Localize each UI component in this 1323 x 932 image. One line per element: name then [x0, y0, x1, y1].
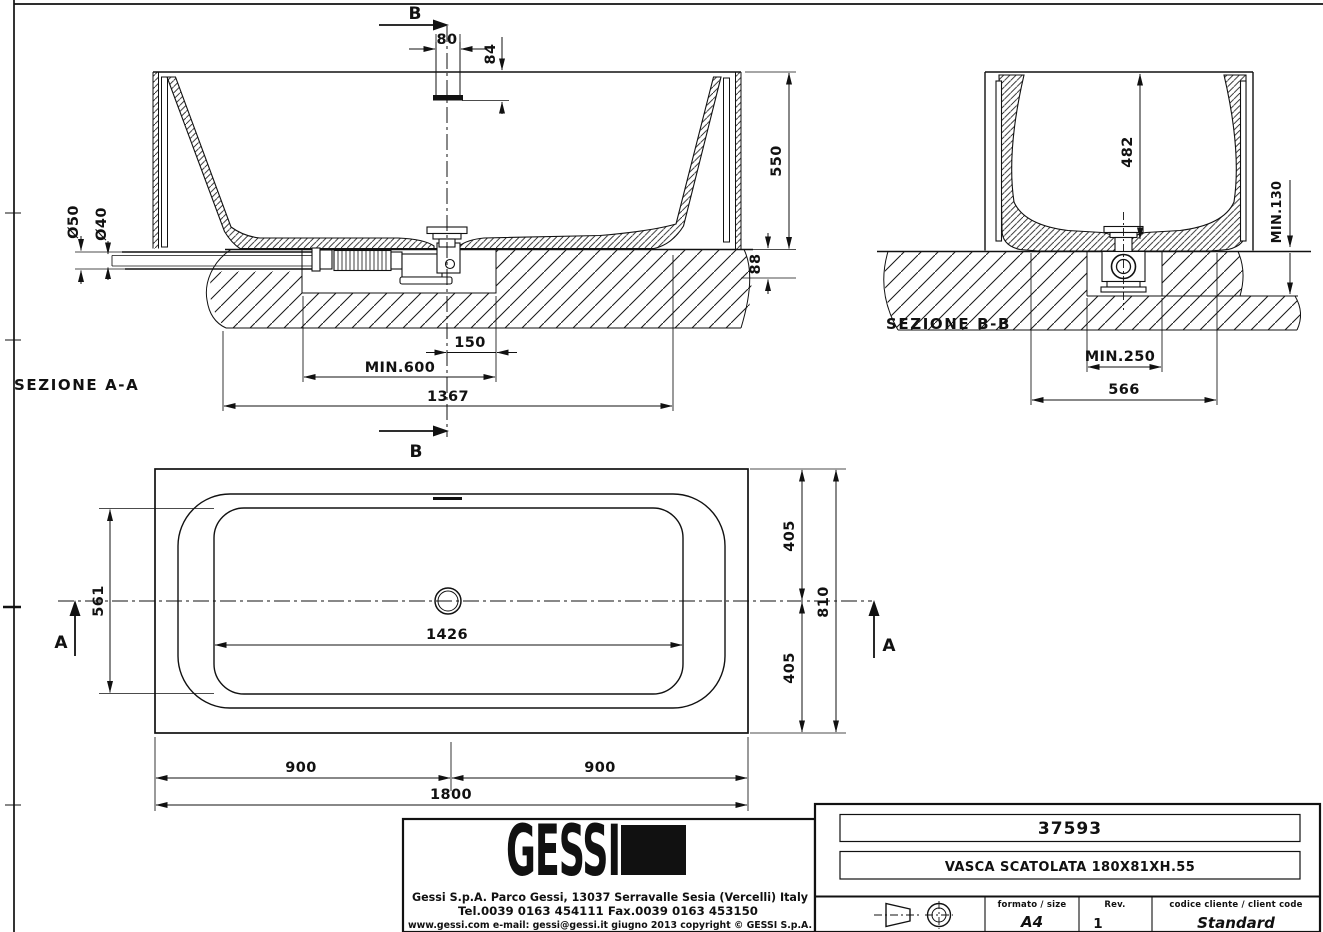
tub-shell-section: [167, 77, 721, 249]
plan-view: A A 561 1426 405 405 810: [54, 469, 896, 811]
rev-value: 1: [1093, 916, 1102, 932]
dim-84-label: 84: [483, 44, 499, 65]
dim-depth: 482: [1120, 74, 1140, 239]
client-code-value: Standard: [1197, 914, 1275, 932]
cut-letter-b-top: B: [409, 4, 422, 24]
right-apron-panel: [1241, 81, 1247, 241]
rev-label: Rev.: [1104, 900, 1125, 910]
dim-basin-length: 1426: [215, 627, 682, 645]
client-code-label: codice cliente / client code: [1169, 900, 1302, 910]
cut-arrow-b-top: B: [379, 4, 449, 31]
section-bb-view: 482 MIN.130 MIN.250 566 SEZIONE B-B: [877, 72, 1311, 405]
dim-1367-label: 1367: [427, 389, 469, 405]
slab-hatch-right-upper: [1162, 252, 1243, 297]
slab-hatch-left: [210, 272, 302, 329]
cut-letter-a-right: A: [882, 636, 896, 656]
dim-80-label: 80: [437, 32, 458, 48]
format-value: A4: [1020, 913, 1043, 931]
company-phone: Tel.0039 0163 454111 Fax.0039 0163 45315…: [458, 904, 758, 918]
dim-405-top-label: 405: [782, 520, 798, 551]
cut-arrowhead: [70, 600, 81, 616]
title-block: GESSI Gessi S.p.A. Parco Gessi, 13037 Se…: [403, 804, 1320, 932]
description: VASCA SCATOLATA 180X81XH.55: [945, 860, 1195, 875]
format-label: formato / size: [998, 900, 1067, 910]
drawing-sheet: 80 84 B B Ø50 Ø40: [0, 0, 1323, 932]
cut-arrow-a-left: A: [54, 600, 80, 656]
section-aa-view: 80 84 B B Ø50 Ø40: [14, 4, 796, 462]
dim-pipe-width: 80: [409, 32, 487, 56]
cut-arrow-b-bottom: B: [379, 426, 449, 463]
dim-min130-label: MIN.130: [1270, 181, 1285, 244]
left-apron-panel: [162, 77, 168, 247]
dim-dia50-label: Ø50: [66, 205, 82, 239]
dim-recess-depth: MIN.130: [1270, 180, 1290, 294]
slab-hatch-mid: [302, 293, 496, 328]
dim-1800-label: 1800: [430, 787, 472, 803]
dim-566-label: 566: [1108, 382, 1139, 398]
drain-trap-assembly: [312, 227, 467, 284]
dim-150-label: 150: [454, 335, 485, 351]
section-bb-title: SEZIONE B-B: [886, 315, 1011, 333]
dim-482-label: 482: [1120, 136, 1136, 167]
left-apron-panel: [996, 81, 1002, 241]
article-code: 37593: [1038, 819, 1102, 839]
slab-hatch-under-recess: [1087, 296, 1162, 330]
cut-arrow-a-right: A: [869, 600, 897, 658]
dim-810-label: 810: [816, 586, 832, 617]
gessi-logo-square: [621, 825, 686, 875]
slab-hatch-right: [496, 250, 751, 329]
dim-1426-label: 1426: [426, 627, 468, 643]
dim-drain-diameters: Ø50 Ø40: [66, 205, 125, 284]
dim-561-label: 561: [91, 585, 107, 616]
dim-88-label: 88: [748, 254, 764, 275]
dim-min600-label: MIN.600: [365, 360, 436, 376]
dim-550-label: 550: [769, 145, 785, 176]
dim-405-bottom-label: 405: [782, 652, 798, 683]
cut-letter-a-left: A: [54, 633, 68, 653]
dim-dia40-label: Ø40: [94, 207, 110, 241]
right-wall-strip: [736, 72, 742, 249]
dim-height: 550: [745, 72, 796, 249]
overflow-pipe: [433, 42, 463, 101]
dim-900-left-label: 900: [285, 760, 316, 776]
dim-length-group: 900 900 1800: [155, 737, 748, 811]
cut-letter-b-bottom: B: [410, 442, 423, 462]
dim-900-right-label: 900: [584, 760, 615, 776]
slab-hatch-right-lower: [1162, 296, 1301, 330]
left-wall-strip: [153, 72, 159, 249]
company-web: www.gessi.com e-mail: gessi@gessi.it giu…: [408, 920, 812, 931]
technical-drawing-svg: 80 84 B B Ø50 Ø40: [0, 0, 1323, 932]
company-address: Gessi S.p.A. Parco Gessi, 13037 Serraval…: [412, 890, 808, 904]
gessi-logo-text: GESSI: [506, 810, 620, 892]
drain-pipe: [112, 252, 312, 269]
cut-arrowhead: [869, 600, 880, 616]
dim-min250-label: MIN.250: [1085, 349, 1156, 365]
right-apron-panel: [724, 78, 730, 242]
section-aa-title: SEZIONE A-A: [14, 376, 139, 394]
